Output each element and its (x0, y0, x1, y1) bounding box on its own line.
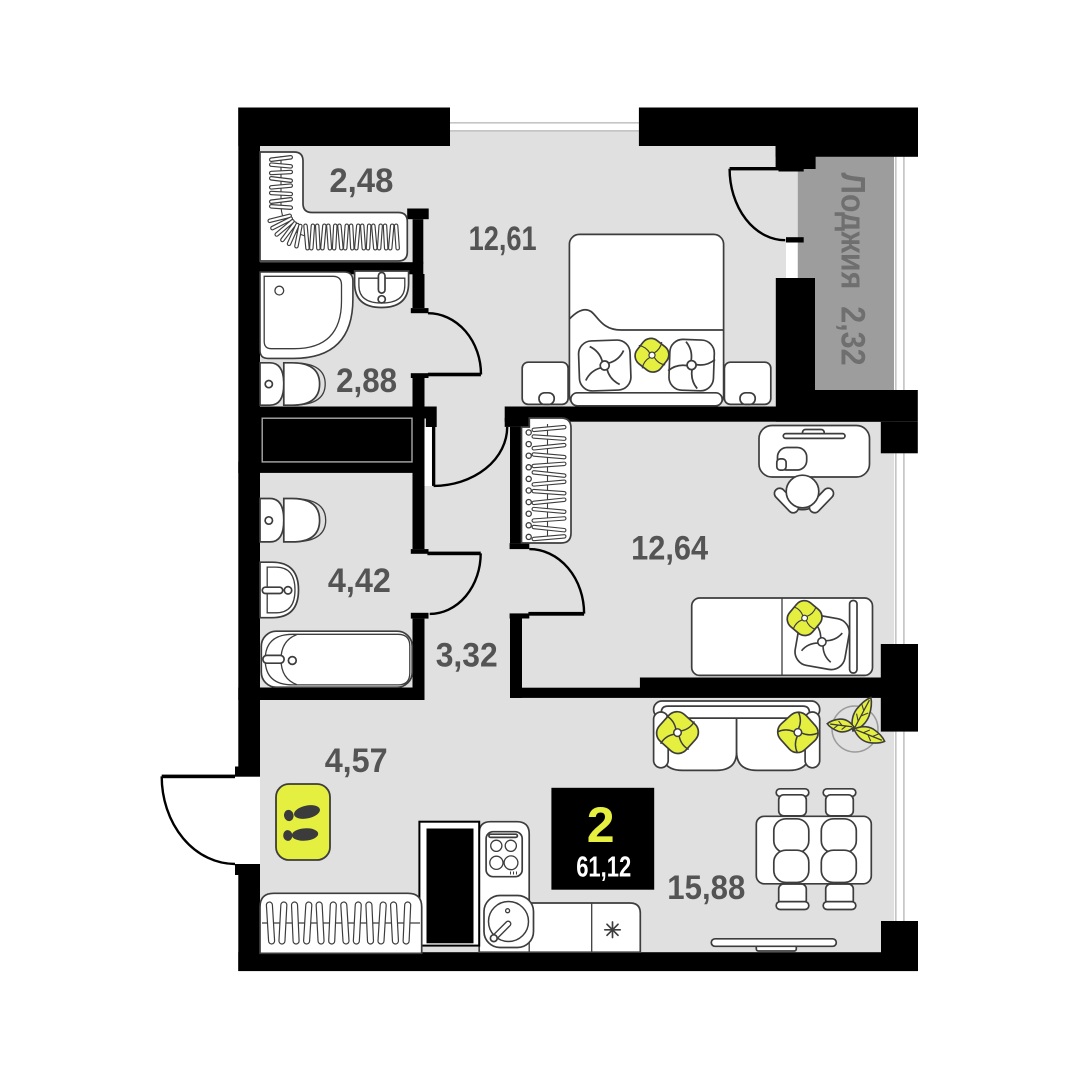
svg-text:4,42: 4,42 (328, 562, 391, 600)
svg-text:12,64: 12,64 (631, 530, 708, 568)
svg-text:15,88: 15,88 (667, 869, 745, 907)
svg-text:12,61: 12,61 (469, 220, 537, 258)
svg-text:3,32: 3,32 (436, 636, 498, 674)
svg-text:2,88: 2,88 (336, 362, 397, 400)
svg-text:Лоджия 2,32: Лоджия 2,32 (834, 173, 872, 366)
svg-text:2: 2 (587, 797, 615, 853)
svg-text:61,12: 61,12 (576, 852, 631, 884)
svg-text:2,48: 2,48 (329, 162, 393, 200)
svg-text:4,57: 4,57 (325, 742, 388, 780)
